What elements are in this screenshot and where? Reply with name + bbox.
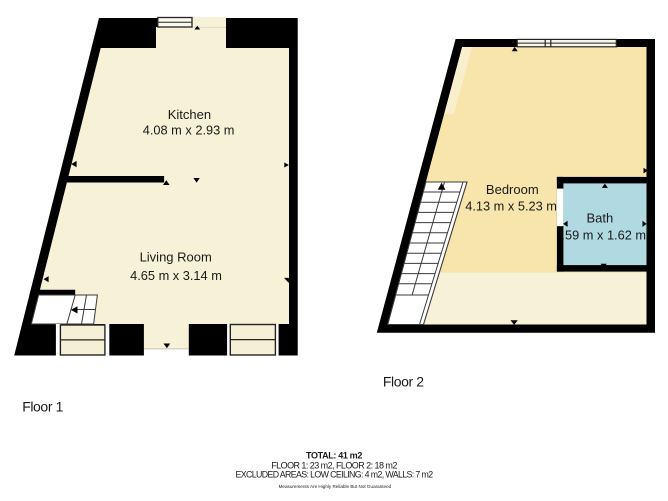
svg-text:Floor 2: Floor 2 — [383, 374, 424, 390]
svg-text:TOTAL: 41 m2: TOTAL: 41 m2 — [306, 451, 362, 461]
svg-text:4.08 m x 2.93 m: 4.08 m x 2.93 m — [143, 122, 235, 137]
svg-text:Bedroom: Bedroom — [486, 182, 539, 197]
svg-text:1.59 m x 1.62 m: 1.59 m x 1.62 m — [554, 227, 646, 242]
svg-text:EXCLUDED AREAS: LOW CEILING: 4: EXCLUDED AREAS: LOW CEILING: 4 m2, WALLS… — [235, 470, 433, 480]
svg-text:4.65 m x 3.14 m: 4.65 m x 3.14 m — [130, 268, 222, 283]
svg-text:Bath: Bath — [587, 211, 614, 226]
svg-text:Kitchen: Kitchen — [168, 107, 211, 122]
svg-text:Living Room: Living Room — [140, 250, 212, 265]
svg-text:Floor 1: Floor 1 — [22, 399, 63, 415]
svg-text:Measurements Are Highly Reliab: Measurements Are Highly Reliable But Not… — [279, 484, 392, 489]
svg-text:4.13 m x 5.23 m: 4.13 m x 5.23 m — [465, 199, 557, 214]
